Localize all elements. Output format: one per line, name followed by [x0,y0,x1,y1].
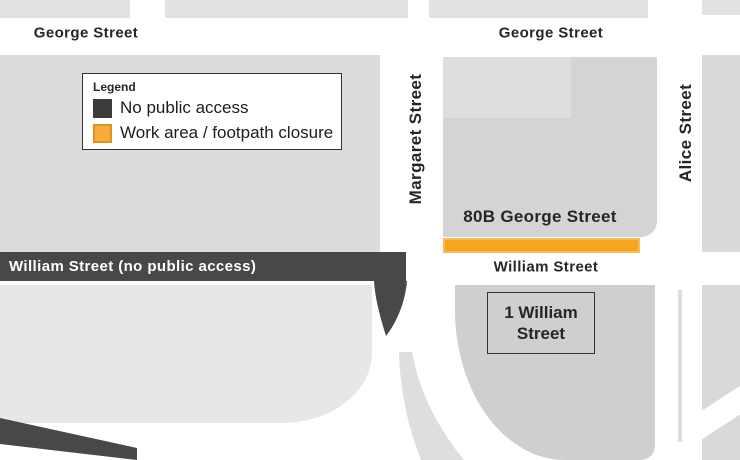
legend-label: Work area / footpath closure [120,122,333,144]
building-1-william-label: 1 William Street [488,302,594,345]
building-block-east [702,55,740,252]
no-access-ramp-shape [374,281,407,336]
william-street-label: William Street [494,259,599,276]
legend: Legend No public access Work area / foot… [82,73,342,150]
legend-row-work-area: Work area / footpath closure [93,122,341,144]
work-area-swatch-icon [93,124,112,143]
building-80b-label: 80B George Street [463,207,616,227]
road-median-wedge [399,352,464,460]
william-street-no-access-band: William Street (no public access) [0,252,406,281]
george-street-label-west: George Street [34,25,138,42]
street-map: William Street (no public access) George… [0,0,740,460]
building-block [0,0,130,18]
building-block [165,0,408,18]
building-block [702,0,740,15]
building-block-southwest [0,285,372,423]
building-block [429,0,648,18]
legend-row-no-access: No public access [93,97,341,119]
margaret-street-label: Margaret Street [406,74,426,205]
george-street-label-east: George Street [499,25,603,42]
alice-street-lane-divider [678,290,682,442]
no-access-offramp-shape [0,418,137,460]
building-1-william-box: 1 William Street [487,292,595,354]
no-access-swatch-icon [93,99,112,118]
work-area-bar [443,238,640,253]
legend-label: No public access [120,97,249,119]
building-shade [443,57,571,118]
legend-title: Legend [93,80,341,94]
alice-street-label: Alice Street [676,84,696,182]
